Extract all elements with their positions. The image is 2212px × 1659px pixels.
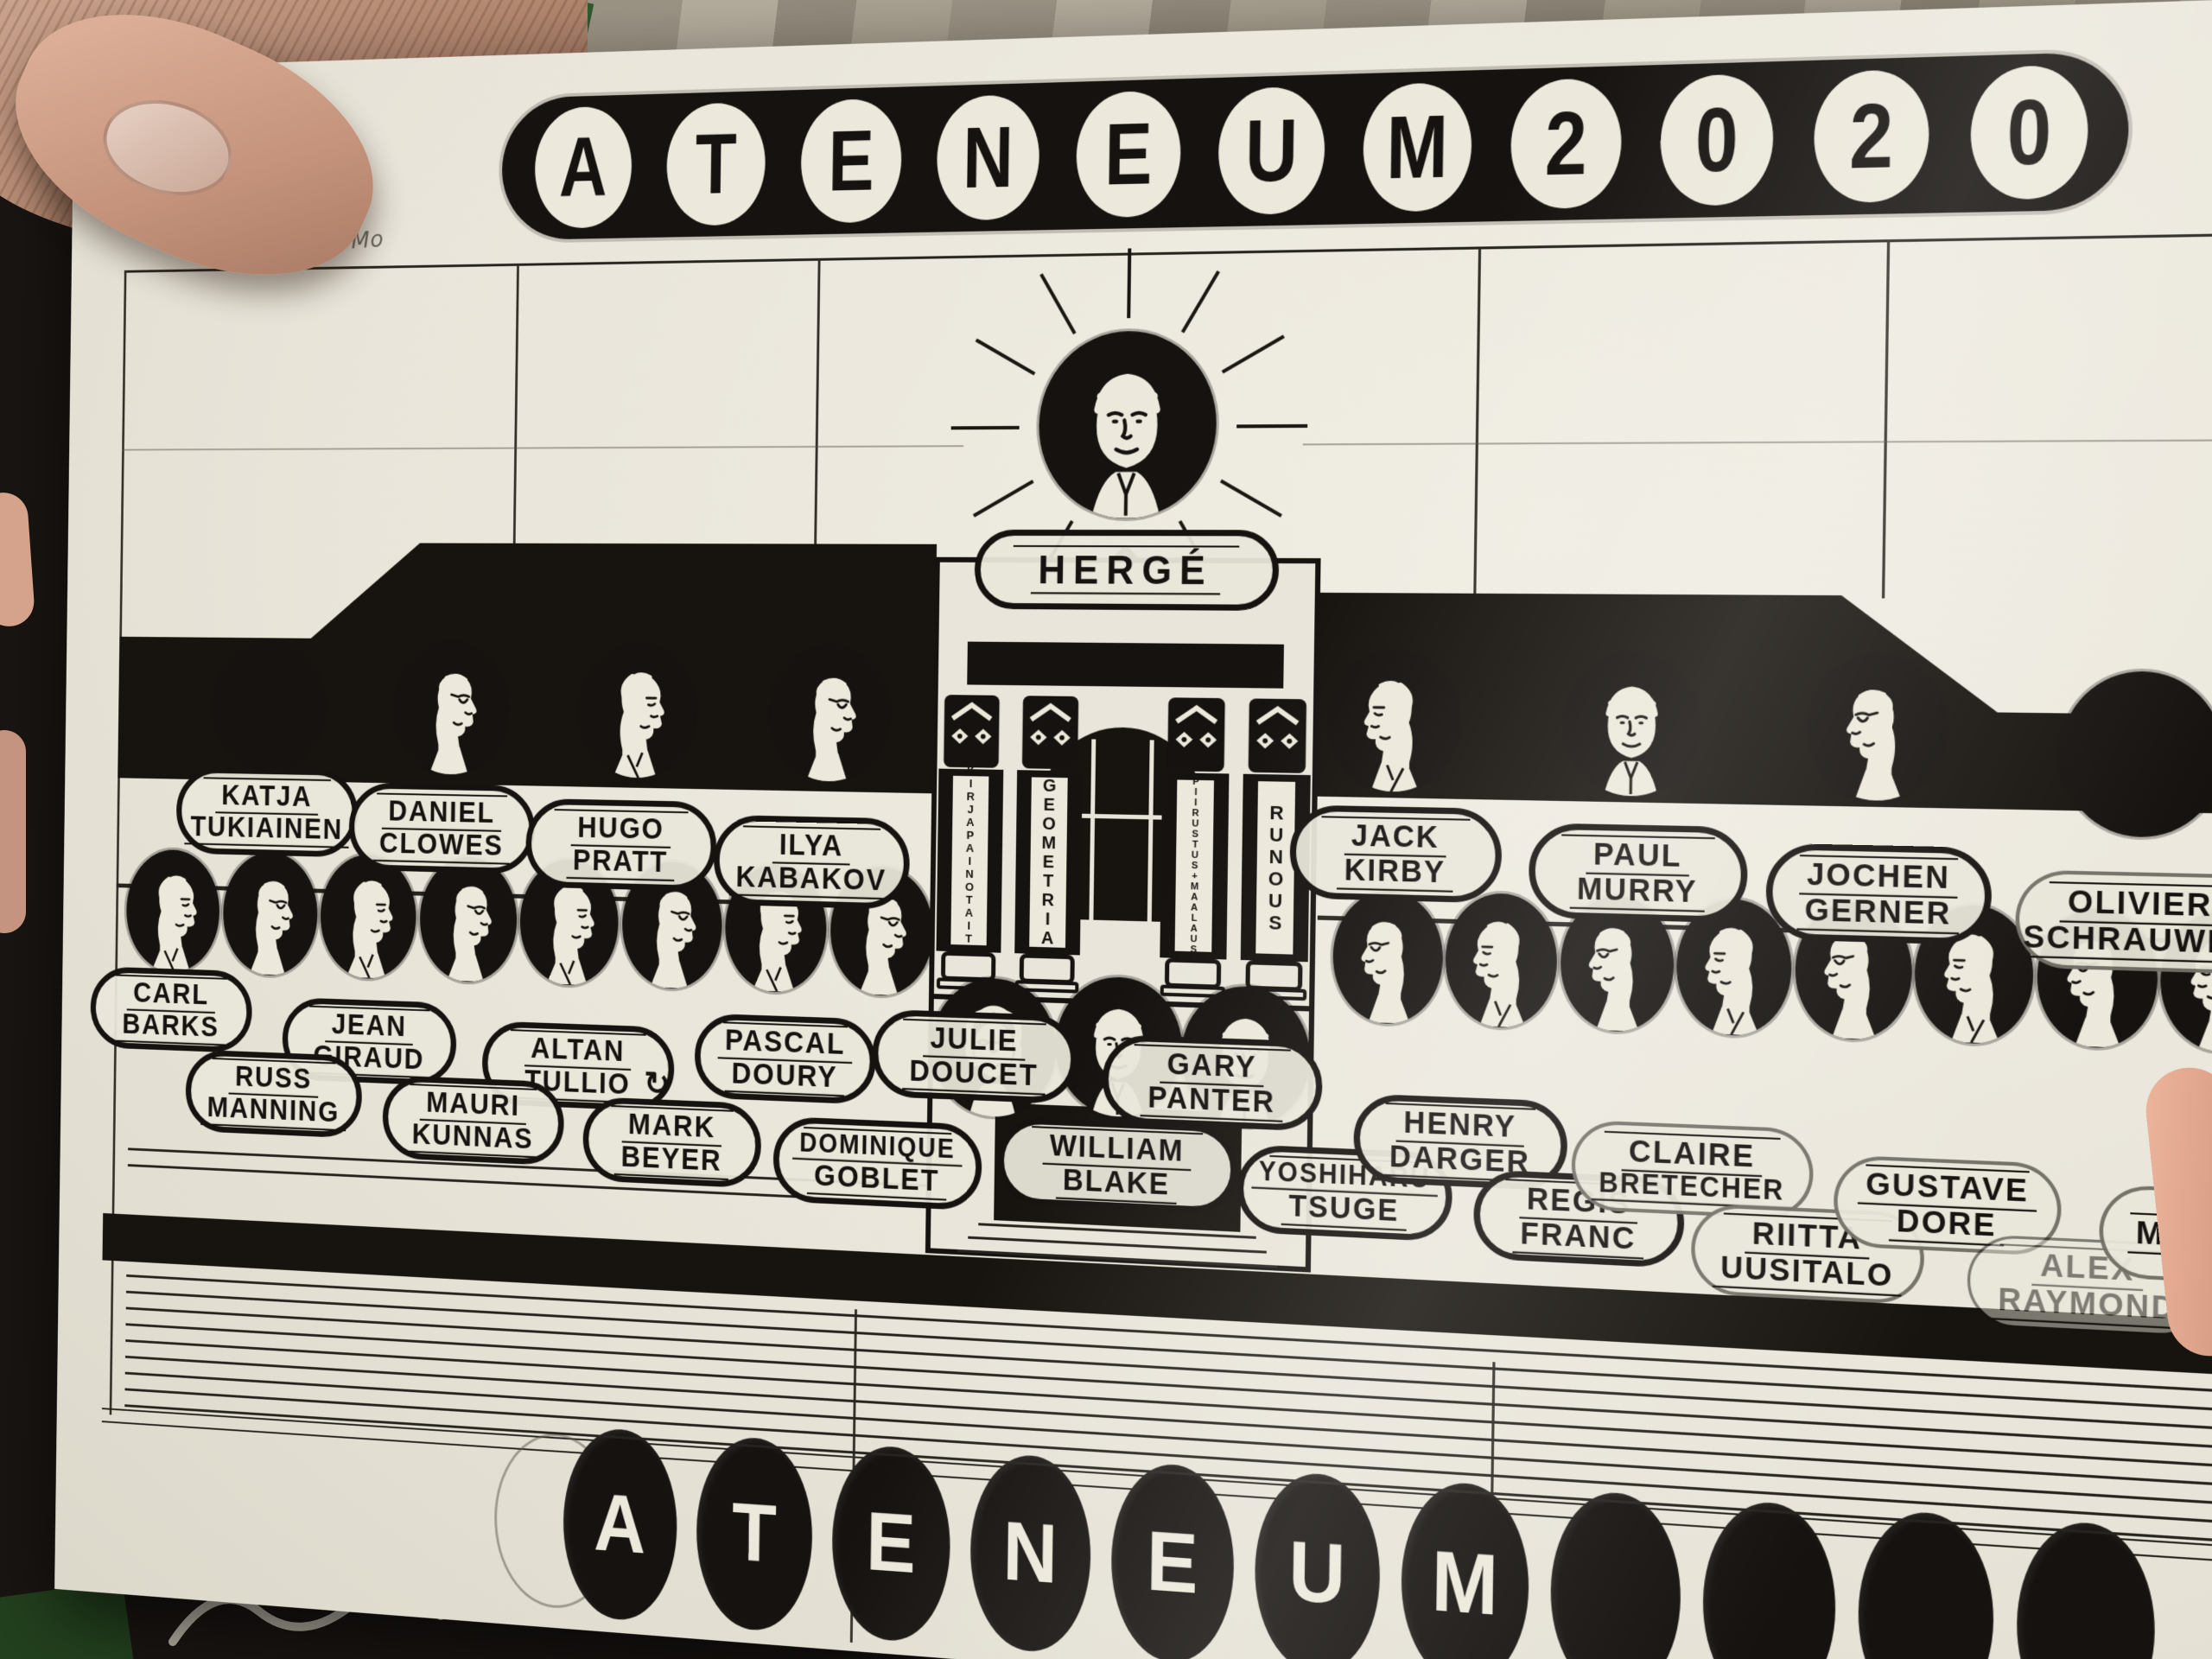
portrait-katja-tukiainen-empty	[213, 641, 325, 772]
label-paul-murry: PAUL MURRY	[1529, 823, 1749, 923]
label-line: BLAKE	[1056, 1163, 1178, 1205]
label-jack-kirby: JACK KIRBY	[1289, 804, 1503, 903]
label-claire-bretecher: CLAIRE BRETECHER	[1571, 1120, 1814, 1220]
label-julie-doucet: JULIE DOUCET	[872, 1009, 1077, 1104]
label-pascal-doury: PASCAL DOURY	[694, 1013, 876, 1104]
swap-arrow-icon: ↻	[644, 1065, 671, 1103]
label-mauri-kunnas: MAURI KUNNAS	[382, 1075, 564, 1166]
pillar-word: PIIRUSTUS+MAALAUS	[1175, 779, 1214, 951]
label-line: BARKS	[116, 1008, 226, 1046]
logo-letter: T	[666, 102, 766, 226]
logo-letter: A	[534, 105, 632, 229]
pencil-line	[1303, 439, 2212, 446]
logo-letter: E	[1110, 1461, 1236, 1659]
label-line: TUKIAINEN	[184, 811, 349, 849]
pillars-right: PIIRUSTUS+MAALAUS RUNOUS	[1160, 696, 1312, 1001]
pillar-word: KIRJAPAINOTAITO	[950, 776, 988, 945]
label-line: KUNNAS	[405, 1118, 540, 1158]
portrait-yoshiharu-tsuge	[1332, 889, 1444, 1026]
label-line: GOBLET	[807, 1159, 946, 1200]
logo-letter-blank	[1549, 1489, 1681, 1659]
label-russ-manning: RUSS MANNING	[185, 1049, 362, 1138]
portrait-carl-barks	[126, 849, 220, 974]
logo-letter: 0	[1660, 73, 1774, 207]
holder-finger-left-lower	[0, 730, 26, 933]
caryatid-icon	[1017, 694, 1084, 771]
logo-letter: M	[1400, 1479, 1529, 1659]
label-line: SCHRAUWEN	[2015, 919, 2212, 964]
illustration-board: ' Paul Murry – Hugo Pratt – Will Eisner …	[54, 0, 2212, 1659]
label-william-blake: WILLIAM BLAKE	[997, 1117, 1237, 1215]
logo-letter: U	[1254, 1470, 1382, 1659]
label-line: BRETECHER	[1591, 1168, 1792, 1210]
label-line: MURRY	[1569, 872, 1705, 912]
portrait-russ-manning	[222, 851, 318, 977]
portrait-henry-darger	[1445, 893, 1558, 1030]
portrait-paul-murry	[1565, 653, 1699, 798]
grid-line	[1882, 241, 1890, 598]
logo-letter-blank	[1857, 1509, 1995, 1659]
pillars-left: KIRJAPAINOTAITO GEOMETRIA	[936, 693, 1084, 994]
label-line: PANTER	[1141, 1081, 1283, 1122]
label-line: HUGO	[571, 811, 671, 848]
pillar-word: RUNOUS	[1255, 781, 1295, 954]
logo-letter: 0	[1970, 65, 2089, 200]
portrait-mauri-kunnas	[419, 856, 518, 984]
pillar: KIRJAPAINOTAITO	[936, 693, 1005, 991]
logo-letter-blank	[2015, 1519, 2156, 1659]
label-line: BEYER	[614, 1141, 729, 1180]
label-line: DOURY	[725, 1058, 845, 1097]
medallion-row-1-left	[213, 641, 889, 783]
photo-scene: ' Paul Murry – Hugo Pratt – Will Eisner …	[0, 0, 2212, 1659]
label-line: GERNER	[1796, 893, 1959, 934]
pillar-word: GEOMETRIA	[1029, 777, 1068, 947]
caryatid-icon	[1162, 696, 1230, 773]
label-mark-beyer: MARK BEYER	[582, 1096, 761, 1189]
pillar: GEOMETRIA	[1014, 694, 1084, 994]
label-ilya-kabakov: ILYA KABAKOV	[713, 815, 910, 910]
label-gary-panter: GARY PANTER	[1102, 1034, 1323, 1132]
label-jochen-gerner: JOCHEN GERNER	[1765, 843, 1993, 946]
pencil-line	[122, 445, 963, 450]
logo-letter: M	[1363, 82, 1472, 213]
portrait-jean-giraud	[320, 854, 416, 981]
label-daniel-clowes: DANIEL CLOWES	[348, 782, 535, 874]
label-line: PAUL	[1586, 837, 1689, 876]
grid-line	[1473, 248, 1481, 595]
portrait-hugo-pratt	[579, 644, 696, 779]
label-line: PRATT	[566, 844, 675, 881]
holder-finger-left	[0, 491, 35, 628]
caryatid-icon	[1243, 696, 1312, 775]
entablature	[967, 642, 1284, 689]
logo-letter: E	[800, 98, 902, 223]
label-line: DORE	[1889, 1204, 2005, 1247]
label-line: RAYMOND	[1990, 1282, 2185, 1330]
logo-letter-blank	[1701, 1498, 1837, 1659]
label-carl-barks: CARL BARKS	[90, 966, 252, 1053]
portrait-ilya-kabakov	[769, 645, 889, 782]
label-herge: HERGÉ	[974, 530, 1279, 611]
label-line: TSUGE	[1281, 1189, 1407, 1230]
portrait-daniel-clowes	[394, 642, 508, 775]
label-line: UUSITALO	[1713, 1250, 1902, 1297]
pillar: PIIRUSTUS+MAALAUS	[1160, 696, 1230, 998]
logo-letter: N	[969, 1452, 1092, 1656]
label-line: KATJA	[215, 780, 319, 816]
label-line: ILYA	[772, 829, 850, 865]
label-olivier-schrauwen: OLIVIER SCHRAUWEN	[2015, 869, 2212, 975]
label-line: FRANC	[1513, 1217, 1644, 1260]
logo-letter: A	[563, 1426, 678, 1624]
logo-letter: 2	[1814, 69, 1930, 204]
logo-letter: 2	[1510, 78, 1622, 210]
label-line: KIRBY	[1337, 854, 1453, 893]
portrait-jochen-gerner	[1808, 655, 1947, 801]
logo-letter: E	[831, 1443, 951, 1645]
logo-letter: T	[696, 1434, 814, 1634]
label-line: DOUCET	[902, 1054, 1045, 1095]
label-line: MANNING	[200, 1091, 346, 1131]
label-line: CLOWES	[372, 828, 510, 865]
label-line: KABAKOV	[729, 861, 893, 899]
label-line: JACK	[1344, 819, 1446, 858]
label-hugo-pratt: HUGO PRATT	[525, 798, 717, 892]
label-dominique-goblet: DOMINIQUE GOBLET	[772, 1116, 982, 1211]
caryatid-icon	[938, 693, 1004, 770]
label-katja-tukiainen: KATJA TUKIAINEN	[176, 766, 359, 857]
label-line: HERGÉ	[1031, 548, 1220, 595]
portrait-olivier-schrauwen-empty	[2059, 671, 2212, 839]
